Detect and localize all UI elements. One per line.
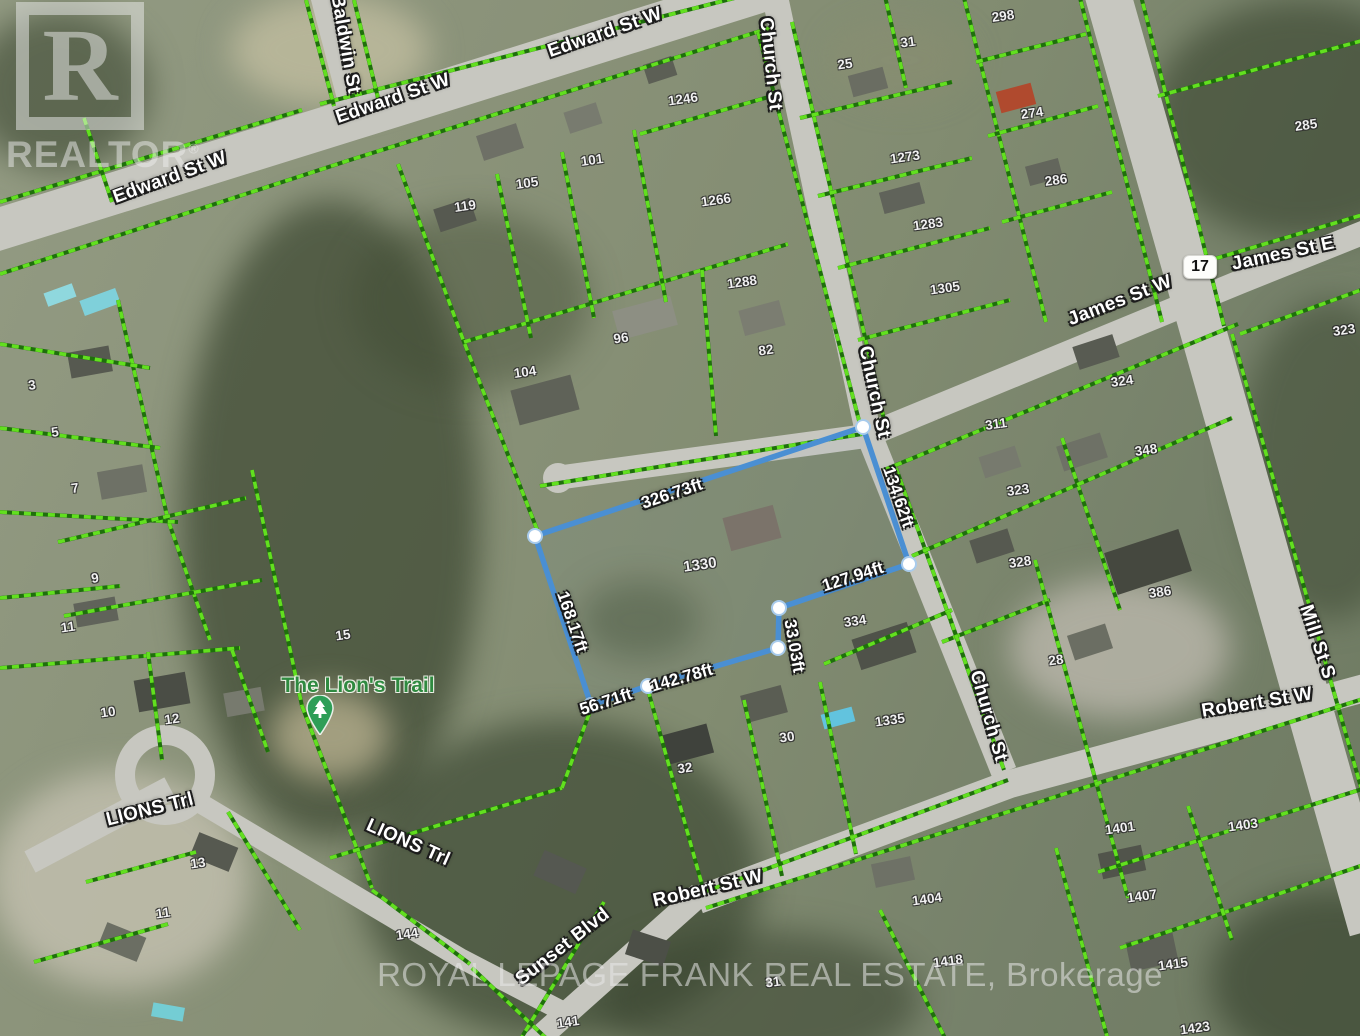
parcel-number-label: 274: [1020, 104, 1044, 122]
building: [79, 288, 120, 316]
parcel-number-label: 11: [155, 905, 171, 922]
parcel-number-label: 31: [900, 34, 917, 51]
parcel-number-label: 5: [50, 424, 60, 440]
road-robert-st-w: [698, 686, 1360, 900]
parcel-boundary-line: [1158, 38, 1360, 96]
building: [223, 687, 265, 717]
building: [848, 67, 888, 98]
parcel-number-label: 11: [60, 619, 76, 636]
parcel-number-label: 104: [513, 363, 537, 381]
parcel-number-label: 31: [765, 974, 782, 991]
parcel-boundary-line: [648, 690, 704, 892]
parcel-number-label: 25: [837, 56, 854, 73]
parcel-boundary-line: [1188, 806, 1232, 940]
parcel-boundary-line: [0, 586, 120, 598]
building: [510, 375, 579, 426]
park-pin-icon[interactable]: [305, 695, 335, 740]
parcel-number-label: 323: [1332, 321, 1356, 339]
parcel-number-label: 96: [613, 330, 630, 347]
parcel-number-label: 334: [843, 612, 867, 630]
road-mill-st-s: [1106, 0, 1360, 930]
parcel-number-label: 348: [1134, 441, 1158, 459]
parcel-number-label: 7: [70, 480, 80, 496]
parcel-number-label: 286: [1044, 171, 1068, 189]
building: [879, 182, 925, 214]
building: [476, 123, 524, 161]
parcel-number-label: 105: [515, 174, 539, 192]
building: [979, 446, 1022, 479]
property-vertex-handle[interactable]: [856, 420, 870, 434]
parcel-number-label: 141: [556, 1013, 580, 1031]
parcel-boundary-line: [252, 470, 302, 706]
building: [134, 672, 191, 713]
parcel-number-label: 1423: [1179, 1018, 1211, 1036]
parcel-number-label: 30: [779, 729, 796, 746]
building: [738, 300, 785, 336]
parcel-number-label: 9: [90, 570, 100, 586]
parcel-number-label: 15: [335, 627, 352, 644]
parcel-number-label: 119: [453, 197, 477, 215]
parcel-boundary-line: [0, 648, 240, 668]
property-vertex-handle[interactable]: [902, 557, 916, 571]
parcel-number-label: 324: [1110, 372, 1134, 390]
building: [1067, 623, 1113, 660]
building: [97, 464, 147, 500]
aerial-parcel-map[interactable]: Edward St WEdward St WEdward St WBaldwin…: [0, 0, 1360, 1036]
building: [44, 283, 77, 306]
parcel-number-label: 10: [100, 704, 117, 721]
parcel-number-label: 328: [1008, 553, 1032, 571]
building: [533, 850, 586, 894]
property-vertex-handle[interactable]: [528, 529, 542, 543]
parcel-number-label: 311: [984, 415, 1008, 433]
parcel-boundary-line: [34, 924, 168, 962]
parcel-number-label: 298: [991, 7, 1015, 25]
parcel-number-label: 285: [1294, 116, 1318, 134]
building: [662, 724, 714, 765]
building: [151, 1002, 185, 1021]
parcel-boundary-line: [634, 130, 666, 302]
parcel-number-label: 3: [27, 377, 37, 393]
parcel-number-label: 32: [677, 760, 694, 777]
parcel-number-label: 13: [190, 855, 207, 872]
parcel-number-label: 28: [1048, 652, 1065, 669]
parcel-number-label: 386: [1148, 583, 1172, 601]
building: [871, 856, 915, 888]
parcel-number-label: 82: [758, 342, 775, 359]
parcel-number-label: 101: [580, 151, 604, 169]
parcel-number-label: 12: [164, 711, 181, 728]
road-church-st-north: [774, 0, 868, 432]
parcel-boundary-line: [640, 96, 772, 134]
highway-17-badge: 17: [1183, 255, 1217, 279]
building: [563, 102, 602, 133]
road-james-stub: [543, 463, 573, 493]
parcel-number-label: 323: [1006, 481, 1030, 499]
parcel-number-label: 144: [395, 925, 419, 943]
property-vertex-handle[interactable]: [772, 601, 786, 615]
